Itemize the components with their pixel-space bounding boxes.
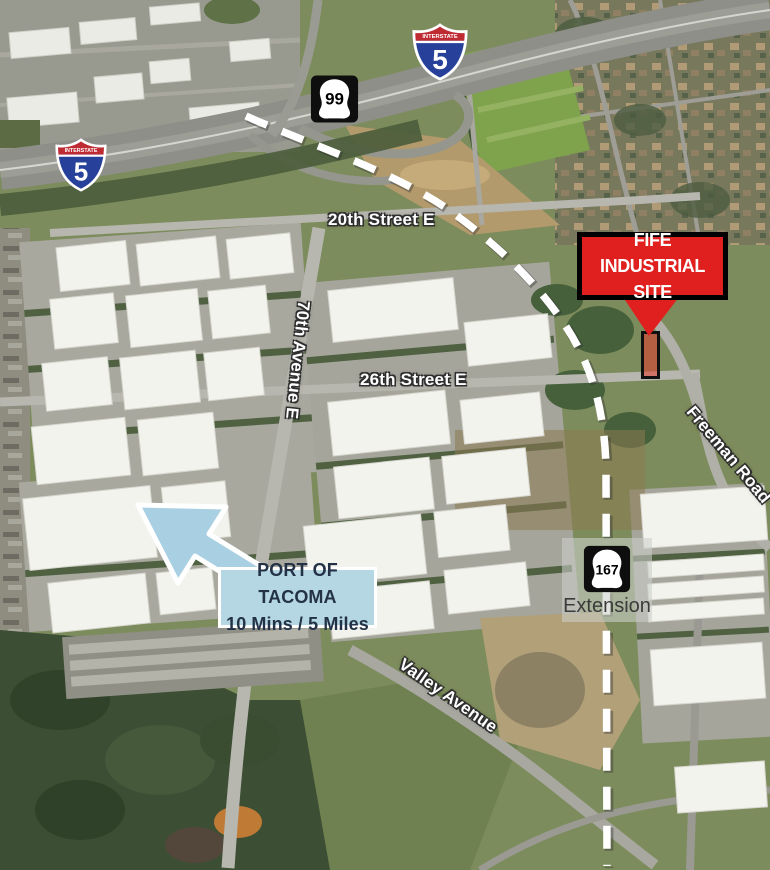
port-callout-line1: PORT OF TACOMA (221, 557, 374, 611)
port-callout: PORT OF TACOMA 10 Mins / 5 Miles (218, 567, 377, 628)
interstate-number: 5 (74, 157, 88, 187)
sr167-extension-badge: 167 Extension (562, 538, 652, 622)
port-callout-line2: 10 Mins / 5 Miles (226, 611, 369, 638)
interstate-5-shield-top: INTERSTATE 5 (412, 22, 468, 82)
sr167-number: 167 (595, 562, 618, 578)
site-callout-line1: FIFE INDUSTRIAL (582, 227, 723, 279)
site-callout: FIFE INDUSTRIAL SITE (577, 232, 728, 300)
sr99-shield: 99 (310, 74, 359, 124)
interstate-5-shield-left: INTERSTATE 5 (55, 137, 107, 193)
extension-label: Extension (563, 595, 651, 618)
street-label-26th: 26th Street E (360, 370, 467, 390)
aerial-map: 20th Street E 26th Street E 70th Avenue … (0, 0, 770, 870)
interstate-banner-text: INTERSTATE (65, 148, 98, 154)
street-label-20th: 20th Street E (328, 210, 435, 230)
interstate-banner-text: INTERSTATE (422, 34, 457, 40)
site-callout-line2: SITE (633, 279, 671, 305)
route-dashed-line (0, 0, 770, 870)
interstate-number: 5 (432, 44, 448, 75)
sr99-number: 99 (325, 90, 344, 109)
sr167-shield: 167 (583, 545, 631, 593)
